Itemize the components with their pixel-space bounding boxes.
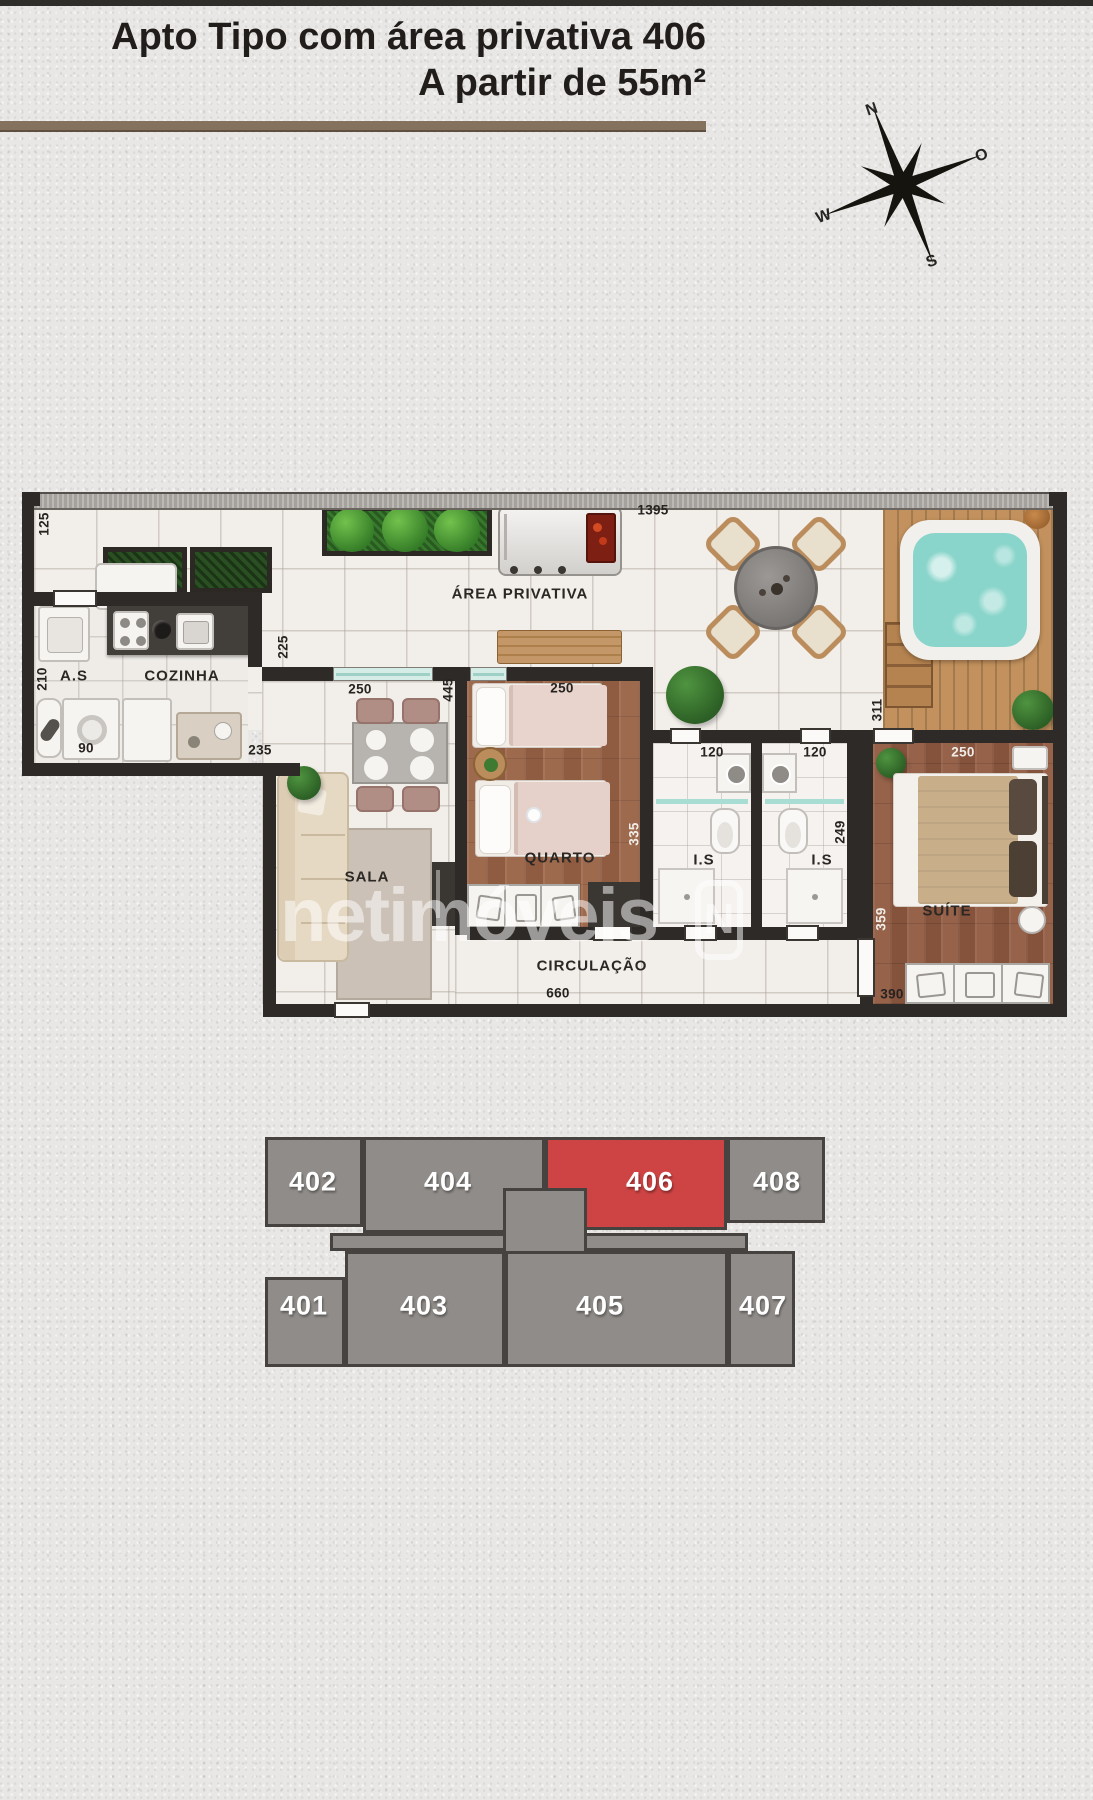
dim-445: 445 xyxy=(441,678,456,701)
keyplan-label-405: 405 xyxy=(576,1291,624,1322)
dim-390: 390 xyxy=(880,987,903,1002)
bath2-window-frame xyxy=(800,728,831,744)
wall-suite-left-stub xyxy=(860,996,873,1006)
wood-bench xyxy=(497,630,622,664)
wall-living-top-a xyxy=(262,667,333,681)
wall-bath-divider xyxy=(751,743,762,930)
dim-210: 210 xyxy=(35,667,50,690)
dim-249: 249 xyxy=(833,820,848,843)
ironing-board xyxy=(36,698,62,758)
floorplan: A.S COZINHA ÁREA PRIVATIVA SALA QUARTO I… xyxy=(0,0,1093,1100)
keyplan-label-404: 404 xyxy=(424,1167,472,1198)
keyplan-label-408: 408 xyxy=(753,1167,801,1198)
dim-250-bedroom: 250 xyxy=(550,681,573,696)
watermark-logo: N xyxy=(695,880,743,960)
plate-icon xyxy=(364,728,388,752)
cooktop xyxy=(113,611,149,650)
bath2-glass xyxy=(765,799,844,804)
dim-1395: 1395 xyxy=(637,503,668,518)
suite-bed xyxy=(893,773,1048,907)
room-label-bath1: I.S xyxy=(693,852,714,869)
suite-wardrobe xyxy=(905,963,1050,1004)
dim-250-suite: 250 xyxy=(951,745,974,760)
entry-door-frame xyxy=(334,1002,370,1018)
plant-icon xyxy=(330,508,374,552)
deck-plant xyxy=(1012,690,1054,730)
dining-chair xyxy=(356,698,394,724)
dim-311: 311 xyxy=(870,699,885,722)
dim-235: 235 xyxy=(248,743,271,758)
keyplan: 402 404 406 408 401 403 405 407 xyxy=(0,1100,1093,1420)
dim-90: 90 xyxy=(78,741,94,756)
plant-icon xyxy=(434,508,480,552)
wall-suite-left xyxy=(860,743,873,940)
wall-left xyxy=(22,492,34,775)
room-label-kitchen: COZINHA xyxy=(144,668,219,685)
keyplan-label-402: 402 xyxy=(289,1167,337,1198)
wall-living-left xyxy=(263,763,276,1017)
suite-side-table xyxy=(1018,906,1046,934)
dining-chair xyxy=(402,698,440,724)
bedside-table xyxy=(473,747,507,781)
dining-chair xyxy=(402,786,440,812)
watermark-text: netimóveis xyxy=(280,872,657,959)
bath1-glass xyxy=(656,799,748,804)
pot-icon xyxy=(152,620,171,639)
keyplan-label-406: 406 xyxy=(626,1167,674,1198)
bath1-toilet xyxy=(710,808,740,854)
kitchen-table xyxy=(176,712,242,760)
suite-door-frame xyxy=(857,938,875,997)
plant-icon xyxy=(382,506,428,552)
suite-nightstand xyxy=(1012,746,1048,770)
grill-coal-window xyxy=(586,513,616,563)
hot-tub xyxy=(900,520,1040,660)
wall-kitchen-right xyxy=(248,592,262,667)
dim-660: 660 xyxy=(546,986,569,1001)
watermark-logo-letter: N xyxy=(704,895,734,943)
room-label-bedroom: QUARTO xyxy=(525,850,596,867)
dim-225: 225 xyxy=(276,635,291,658)
keyplan-label-403: 403 xyxy=(400,1291,448,1322)
wall-top xyxy=(22,492,1067,510)
room-label-suite: SUÍTE xyxy=(922,903,971,920)
laundry-tank xyxy=(38,606,90,662)
keyplan-label-401: 401 xyxy=(280,1291,328,1322)
keyplan-label-407: 407 xyxy=(739,1291,787,1322)
wall-bottom xyxy=(263,1004,1067,1017)
bath2-sink xyxy=(770,764,791,785)
kitchen-sink xyxy=(176,613,214,650)
dim-125: 125 xyxy=(37,512,52,535)
room-label-bath2: I.S xyxy=(811,852,832,869)
wall-kitchen-inner-a xyxy=(34,592,55,606)
barbecue-grill xyxy=(498,506,622,576)
bed-single-1 xyxy=(472,683,603,748)
planter-box-2 xyxy=(190,547,272,593)
dim-359: 359 xyxy=(874,907,889,930)
wall-kitchen-inner-b xyxy=(95,592,262,606)
living-glass-door xyxy=(333,667,433,681)
dining-chair xyxy=(356,786,394,812)
terrace-tree xyxy=(666,666,724,724)
wall-corner-right xyxy=(1049,492,1067,506)
outdoor-table xyxy=(734,546,818,630)
bed-single-2 xyxy=(475,780,607,857)
wall-bedroom-top xyxy=(507,667,653,681)
dim-120-b: 120 xyxy=(803,745,826,760)
room-label-private-area: ÁREA PRIVATIVA xyxy=(452,586,589,603)
dim-120-a: 120 xyxy=(700,745,723,760)
bath2-shower xyxy=(786,868,843,924)
wall-kitchen-bottom xyxy=(22,763,300,776)
kitchen-door-frame xyxy=(53,590,97,607)
dim-335: 335 xyxy=(627,822,642,845)
bedroom-glass-door xyxy=(470,667,507,681)
wall-bath-right xyxy=(847,743,860,930)
room-label-service-area: A.S xyxy=(60,668,88,685)
dim-250-living: 250 xyxy=(348,682,371,697)
wall-right xyxy=(1053,506,1067,1017)
bath1-window-frame xyxy=(670,728,701,744)
bath1-sink xyxy=(726,764,747,785)
hot-tub-water xyxy=(913,533,1027,647)
room-label-hall: CIRCULAÇÃO xyxy=(537,958,648,975)
suite-terrace-door-frame xyxy=(873,728,914,744)
fridge xyxy=(122,698,172,762)
bath2-door-frame xyxy=(786,925,819,941)
bath2-toilet xyxy=(778,808,808,854)
